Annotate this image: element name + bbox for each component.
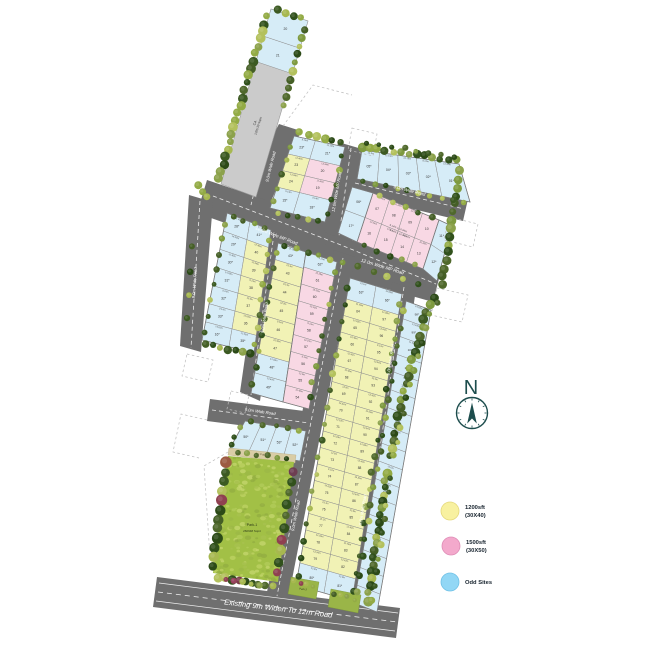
svg-text:73: 73 — [331, 458, 335, 462]
svg-text:43*: 43* — [288, 254, 294, 258]
svg-text:31*: 31* — [224, 279, 230, 283]
svg-text:24: 24 — [289, 180, 293, 184]
svg-text:67: 67 — [348, 359, 352, 363]
svg-text:23*: 23* — [299, 146, 305, 150]
svg-text:65: 65 — [353, 326, 357, 330]
svg-text:89: 89 — [360, 449, 364, 453]
svg-text:81*: 81* — [337, 584, 343, 588]
svg-text:64: 64 — [356, 309, 360, 313]
svg-text:85: 85 — [350, 515, 354, 519]
svg-text:87: 87 — [355, 482, 359, 486]
svg-text:71: 71 — [336, 425, 340, 429]
svg-text:52*: 52* — [293, 443, 299, 447]
svg-text:18*: 18* — [310, 205, 316, 209]
svg-text:44: 44 — [283, 290, 287, 294]
svg-text:03*: 03* — [406, 171, 412, 175]
svg-text:11*: 11* — [439, 234, 445, 238]
svg-text:(30X50): (30X50) — [466, 548, 487, 554]
svg-text:Park-1: Park-1 — [247, 523, 258, 527]
svg-text:08: 08 — [392, 214, 396, 218]
svg-text:82: 82 — [341, 565, 345, 569]
svg-text:13: 13 — [417, 252, 421, 256]
svg-text:1200sft: 1200sft — [465, 505, 485, 511]
svg-text:07: 07 — [375, 207, 379, 211]
svg-text:63*: 63* — [359, 291, 365, 295]
svg-text:21: 21 — [276, 53, 280, 57]
svg-text:66*: 66* — [385, 299, 391, 303]
svg-text:88: 88 — [358, 466, 362, 470]
svg-text:17*: 17* — [349, 224, 355, 228]
svg-text:09: 09 — [408, 220, 412, 224]
svg-text:97: 97 — [382, 317, 386, 321]
svg-text:1500sft: 1500sft — [466, 540, 486, 546]
svg-text:76: 76 — [322, 507, 326, 511]
svg-text:61: 61 — [316, 278, 320, 282]
svg-text:10: 10 — [425, 227, 429, 231]
svg-text:32*: 32* — [221, 297, 227, 301]
svg-text:56: 56 — [301, 362, 305, 366]
svg-text:68: 68 — [345, 375, 349, 379]
svg-text:37: 37 — [246, 304, 250, 308]
svg-text:43: 43 — [286, 272, 290, 276]
svg-text:62*: 62* — [318, 263, 324, 267]
svg-text:29*: 29* — [231, 243, 237, 247]
svg-text:35*: 35* — [240, 339, 246, 343]
svg-text:80*: 80* — [310, 576, 316, 580]
svg-text:74: 74 — [328, 474, 332, 478]
svg-text:55: 55 — [298, 379, 302, 383]
svg-text:260948 Sqmt: 260948 Sqmt — [243, 529, 261, 533]
svg-text:40: 40 — [255, 251, 259, 255]
svg-text:20: 20 — [284, 27, 288, 31]
svg-text:14: 14 — [400, 245, 404, 249]
svg-text:15*: 15* — [282, 199, 288, 203]
svg-text:70: 70 — [339, 408, 343, 412]
svg-text:75: 75 — [325, 491, 329, 495]
svg-text:53*: 53* — [277, 440, 283, 444]
svg-text:33*: 33* — [218, 315, 224, 319]
svg-text:79: 79 — [313, 557, 317, 561]
svg-text:92: 92 — [369, 400, 373, 404]
svg-text:05*: 05* — [366, 164, 372, 168]
svg-text:15: 15 — [384, 238, 388, 242]
svg-text:86: 86 — [352, 499, 356, 503]
svg-text:12*: 12* — [431, 260, 437, 264]
svg-text:(30X40): (30X40) — [465, 513, 486, 519]
svg-text:50*: 50* — [243, 435, 249, 439]
svg-text:28*: 28* — [234, 225, 240, 229]
svg-text:72: 72 — [333, 441, 337, 445]
svg-text:46: 46 — [276, 328, 280, 332]
svg-text:95: 95 — [377, 350, 381, 354]
svg-text:94: 94 — [374, 367, 378, 371]
svg-text:90: 90 — [363, 433, 367, 437]
svg-text:96: 96 — [380, 334, 384, 338]
svg-text:02*: 02* — [426, 175, 432, 179]
svg-text:77: 77 — [319, 524, 323, 528]
svg-text:54: 54 — [296, 395, 300, 399]
svg-text:45: 45 — [280, 309, 284, 313]
svg-text:84: 84 — [347, 532, 351, 536]
svg-text:59: 59 — [310, 312, 314, 316]
svg-text:47: 47 — [273, 347, 277, 351]
svg-text:83: 83 — [344, 548, 348, 552]
svg-text:01*: 01* — [449, 179, 455, 183]
svg-text:36: 36 — [244, 322, 248, 326]
svg-text:66: 66 — [351, 342, 355, 346]
svg-text:N: N — [464, 377, 478, 399]
svg-text:04*: 04* — [386, 168, 392, 172]
svg-text:41*: 41* — [257, 233, 263, 237]
svg-text:49*: 49* — [266, 386, 272, 390]
svg-text:Odd Sites: Odd Sites — [465, 580, 492, 586]
svg-text:93: 93 — [371, 383, 375, 387]
svg-text:16: 16 — [367, 231, 371, 235]
svg-text:19: 19 — [316, 186, 320, 190]
svg-text:91: 91 — [366, 416, 370, 420]
svg-text:51*: 51* — [261, 438, 267, 442]
svg-text:16*: 16* — [215, 333, 221, 337]
svg-text:48*: 48* — [269, 366, 275, 370]
svg-text:23: 23 — [294, 163, 298, 167]
svg-text:20: 20 — [321, 169, 325, 173]
svg-text:58: 58 — [307, 329, 311, 333]
svg-text:06*: 06* — [356, 200, 362, 204]
svg-text:30*: 30* — [228, 261, 234, 265]
svg-text:21*: 21* — [325, 151, 331, 155]
svg-text:78: 78 — [316, 540, 320, 544]
svg-text:57: 57 — [304, 345, 308, 349]
svg-text:69: 69 — [342, 392, 346, 396]
svg-text:38: 38 — [249, 286, 253, 290]
svg-text:60: 60 — [313, 295, 317, 299]
svg-text:39: 39 — [252, 268, 256, 272]
